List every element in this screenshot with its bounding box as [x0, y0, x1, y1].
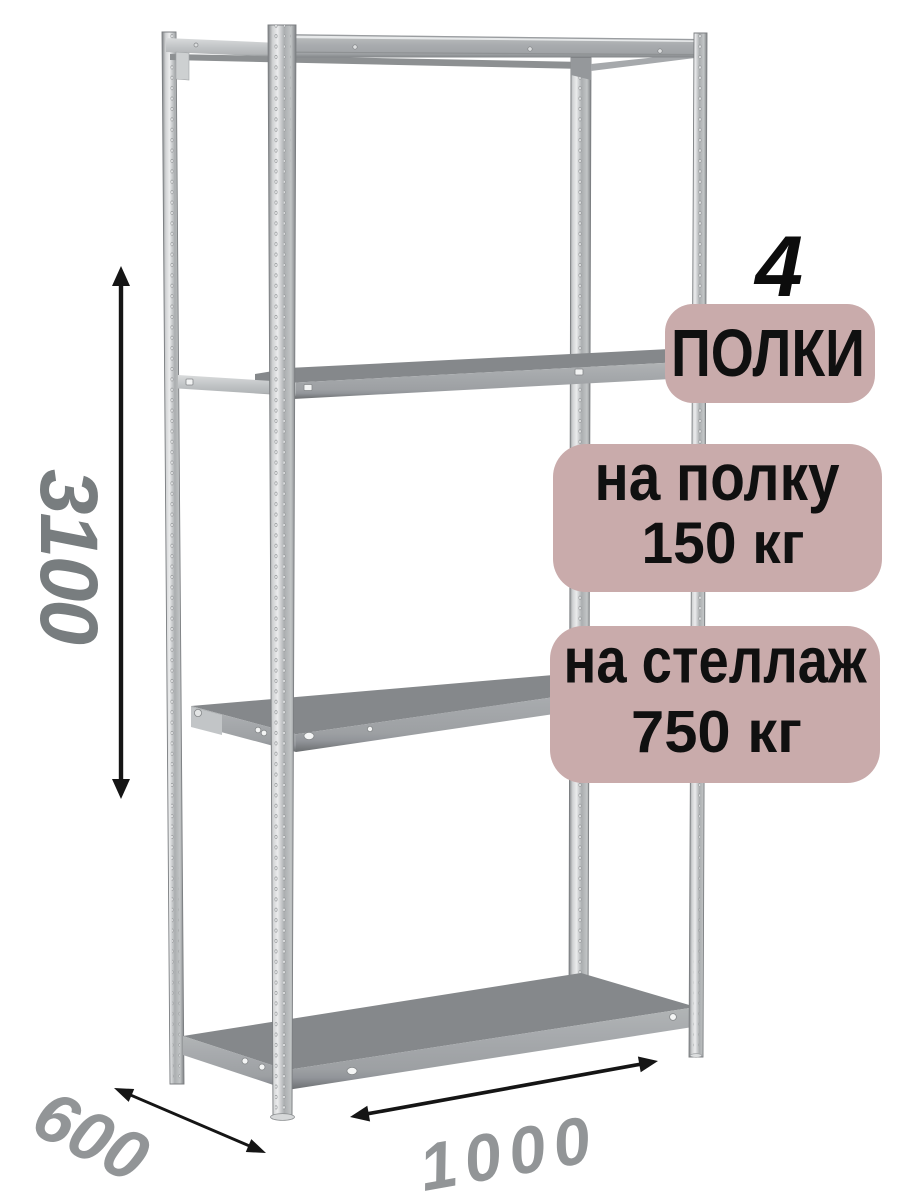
svg-text:4: 4	[753, 219, 803, 315]
svg-text:750 кг: 750 кг	[631, 699, 802, 765]
svg-text:на полку: на полку	[595, 440, 840, 514]
svg-text:3100: 3100	[23, 469, 114, 645]
svg-text:ПОЛКИ: ПОЛКИ	[671, 316, 865, 391]
svg-text:на стеллаж: на стеллаж	[564, 625, 868, 697]
svg-text:150 кг: 150 кг	[642, 511, 805, 576]
